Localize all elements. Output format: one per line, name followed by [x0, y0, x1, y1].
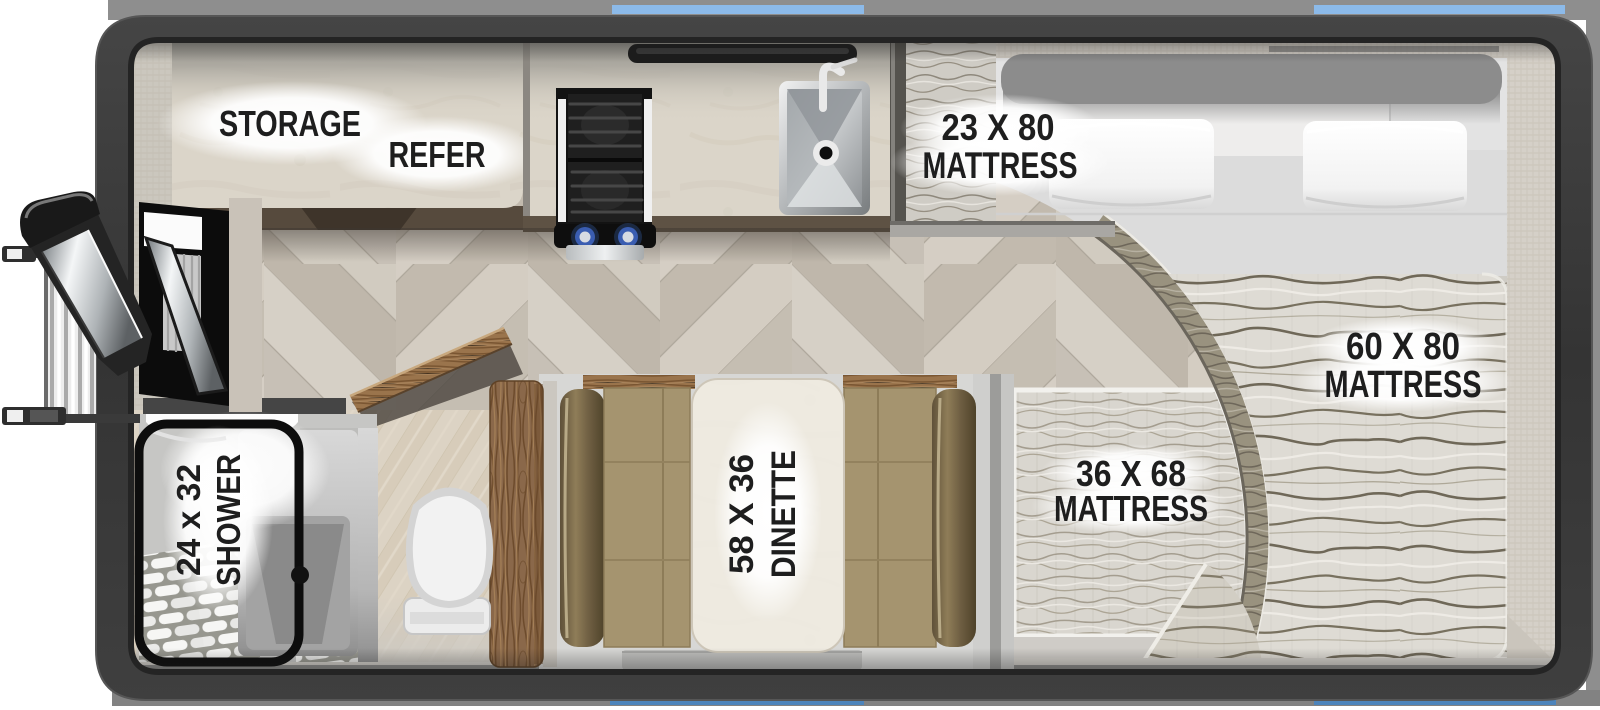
svg-text:MATTRESS: MATTRESS [1325, 364, 1482, 406]
svg-text:58 X 36: 58 X 36 [723, 454, 761, 574]
svg-text:DINETTE: DINETTE [765, 450, 803, 578]
svg-text:60 X 80: 60 X 80 [1346, 326, 1460, 368]
svg-text:REFER: REFER [389, 134, 486, 175]
svg-text:MATTRESS: MATTRESS [1054, 488, 1208, 529]
svg-text:STORAGE: STORAGE [219, 103, 361, 144]
svg-text:SHOWER: SHOWER [210, 454, 247, 586]
svg-text:23 X 80: 23 X 80 [942, 107, 1055, 148]
svg-text:24 x 32: 24 x 32 [170, 464, 207, 576]
svg-text:MATTRESS: MATTRESS [923, 145, 1078, 186]
